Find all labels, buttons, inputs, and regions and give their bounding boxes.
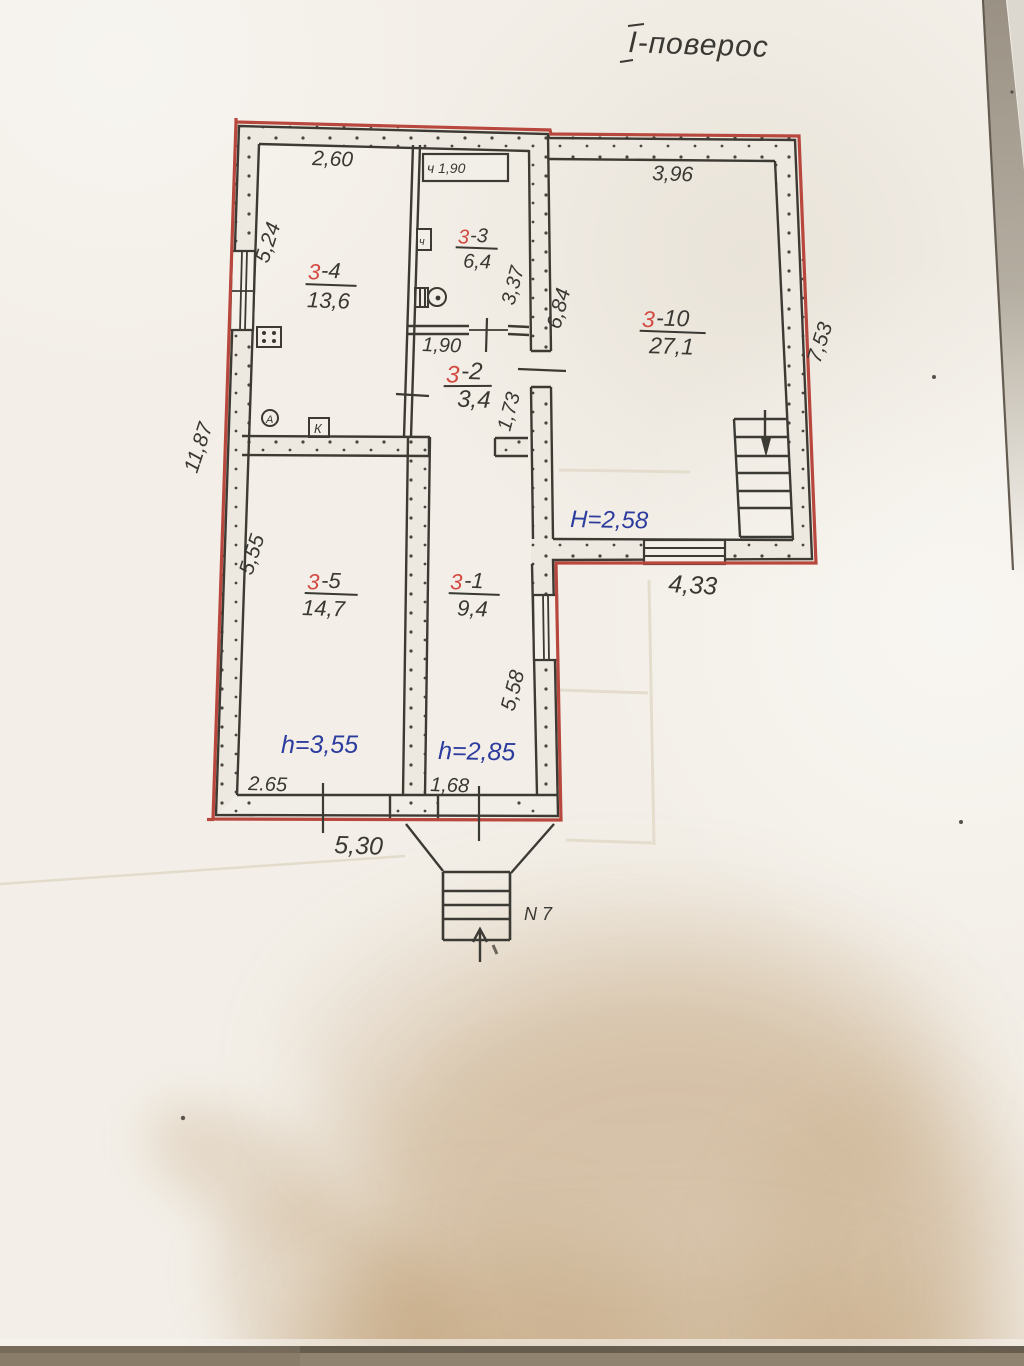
svg-text:2,60: 2,60: [311, 147, 354, 171]
svg-text:-2: -2: [461, 358, 483, 386]
svg-text:13,6: 13,6: [307, 287, 351, 314]
svg-text:К: К: [314, 421, 323, 436]
svg-text:3: 3: [642, 306, 656, 332]
svg-text:6,4: 6,4: [463, 251, 492, 274]
svg-text:h=3,55: h=3,55: [281, 731, 358, 759]
svg-text:-10: -10: [656, 304, 690, 331]
svg-text:3,96: 3,96: [652, 162, 694, 186]
svg-text:H=2,58: H=2,58: [570, 506, 649, 534]
svg-text:ч: ч: [419, 236, 425, 248]
svg-text:2.65: 2.65: [247, 773, 289, 796]
svg-text:3: 3: [307, 569, 321, 594]
svg-text:І-поверос: І-поверос: [628, 26, 770, 64]
svg-text:3: 3: [446, 361, 461, 388]
svg-text:h=2,85: h=2,85: [438, 737, 516, 766]
svg-text:1,90: 1,90: [422, 334, 462, 357]
svg-text:9,4: 9,4: [457, 595, 488, 621]
svg-text:3: 3: [308, 259, 322, 284]
svg-text:14,7: 14,7: [302, 595, 346, 622]
svg-text:3: 3: [450, 569, 464, 594]
svg-text:-5: -5: [321, 568, 342, 594]
svg-text:-4: -4: [321, 258, 341, 284]
svg-text:-3: -3: [470, 225, 489, 248]
svg-text:1,68: 1,68: [430, 774, 470, 797]
svg-text:N 7: N 7: [524, 904, 553, 924]
svg-text:3,4: 3,4: [457, 386, 491, 414]
svg-text:ч 1,90: ч 1,90: [427, 160, 466, 176]
svg-text:27,1: 27,1: [648, 332, 695, 360]
svg-text:5,30: 5,30: [334, 831, 384, 861]
svg-text:-1: -1: [464, 568, 484, 594]
svg-text:А: А: [265, 414, 273, 426]
svg-text:3: 3: [458, 226, 470, 248]
svg-text:4,33: 4,33: [668, 570, 718, 601]
